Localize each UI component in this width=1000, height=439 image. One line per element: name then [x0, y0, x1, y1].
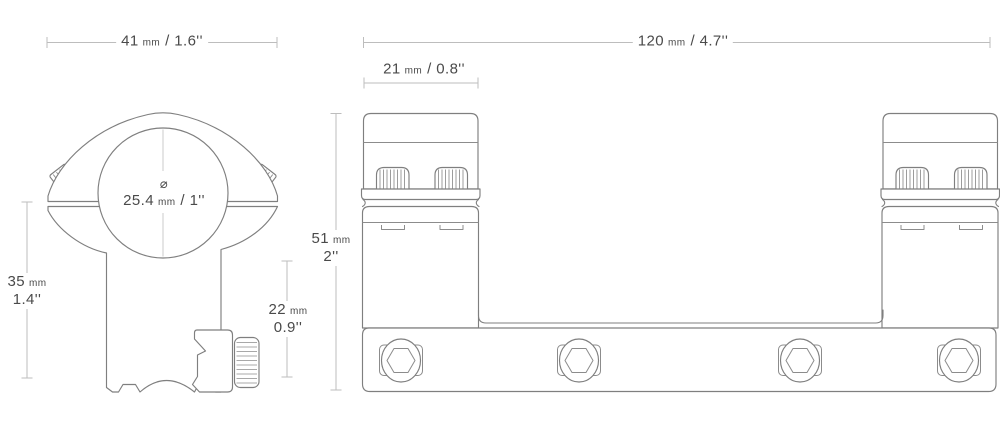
front-view-drawing — [48, 113, 278, 392]
ring-screw-icon — [955, 168, 988, 191]
dim-unit: mm — [333, 235, 350, 246]
technical-drawing — [0, 0, 1000, 439]
dim-unit: mm — [290, 306, 307, 317]
dim-unit: mm — [405, 66, 422, 77]
hex-bolt-icon — [779, 339, 822, 382]
dovetail-clamp-jaw — [193, 330, 233, 392]
dim-inches: 2'' — [323, 248, 338, 265]
dim-unit: mm — [668, 38, 685, 49]
ring-clamp-band — [881, 189, 1000, 200]
diameter-icon: ⌀ — [160, 177, 168, 192]
dim-label-ring-width: 21mm/ 0.8'' — [378, 61, 470, 80]
scope-mount-dimension-diagram: 41mm/ 1.6'' 120mm/ 4.7'' 21mm/ 0.8'' 51m… — [0, 0, 1000, 439]
ring-clamp-band — [362, 189, 481, 200]
hex-bolt-icon — [558, 339, 601, 382]
mount-rail — [363, 328, 997, 392]
dim-inches: / 1.6'' — [165, 33, 203, 50]
hex-bolt-icon — [938, 339, 981, 382]
dim-unit: mm — [143, 38, 160, 49]
dim-inches: 1.4'' — [13, 291, 42, 308]
dim-value: 21 — [383, 61, 401, 78]
saddle-neck — [363, 200, 480, 207]
ring-side-view-right — [881, 114, 1000, 329]
dim-inches: 0.9'' — [274, 319, 303, 336]
dim-value: 51 — [312, 230, 330, 247]
dim-value: 22 — [269, 301, 287, 318]
dim-value: 35 — [8, 273, 26, 290]
dim-label-saddle-height: 22mm 0.9'' — [265, 301, 312, 337]
thumb-screw-icon — [235, 338, 260, 388]
saddle-body — [363, 207, 479, 329]
dim-label-side-height: 51mm 2'' — [308, 230, 355, 266]
dim-label-front-height: 35mm 1.4'' — [4, 273, 51, 309]
dim-inches: / 0.8'' — [427, 61, 465, 78]
hex-bolt-icon — [380, 339, 423, 382]
dim-value: 120 — [638, 33, 664, 50]
dim-value: 41 — [121, 33, 139, 50]
dim-label-front-width: 41mm/ 1.6'' — [116, 33, 208, 52]
dim-inches: / 1'' — [180, 192, 204, 209]
dim-unit: mm — [158, 197, 175, 208]
dim-unit: mm — [29, 278, 46, 289]
side-view-drawing — [362, 114, 1000, 392]
dim-value: 25.4 — [123, 192, 154, 209]
mount-bridge — [479, 310, 884, 323]
ring-screw-icon — [377, 168, 410, 191]
ring-screw-icon — [435, 168, 468, 191]
saddle-neck — [882, 200, 999, 207]
dim-inches: / 4.7'' — [690, 33, 728, 50]
dim-label-side-length: 120mm/ 4.7'' — [633, 33, 733, 52]
dim-label-bore: ⌀ 25.4mm/ 1'' — [119, 176, 209, 212]
saddle-body — [882, 207, 998, 329]
ring-screw-icon — [896, 168, 929, 191]
ring-side-view-left — [362, 114, 481, 329]
